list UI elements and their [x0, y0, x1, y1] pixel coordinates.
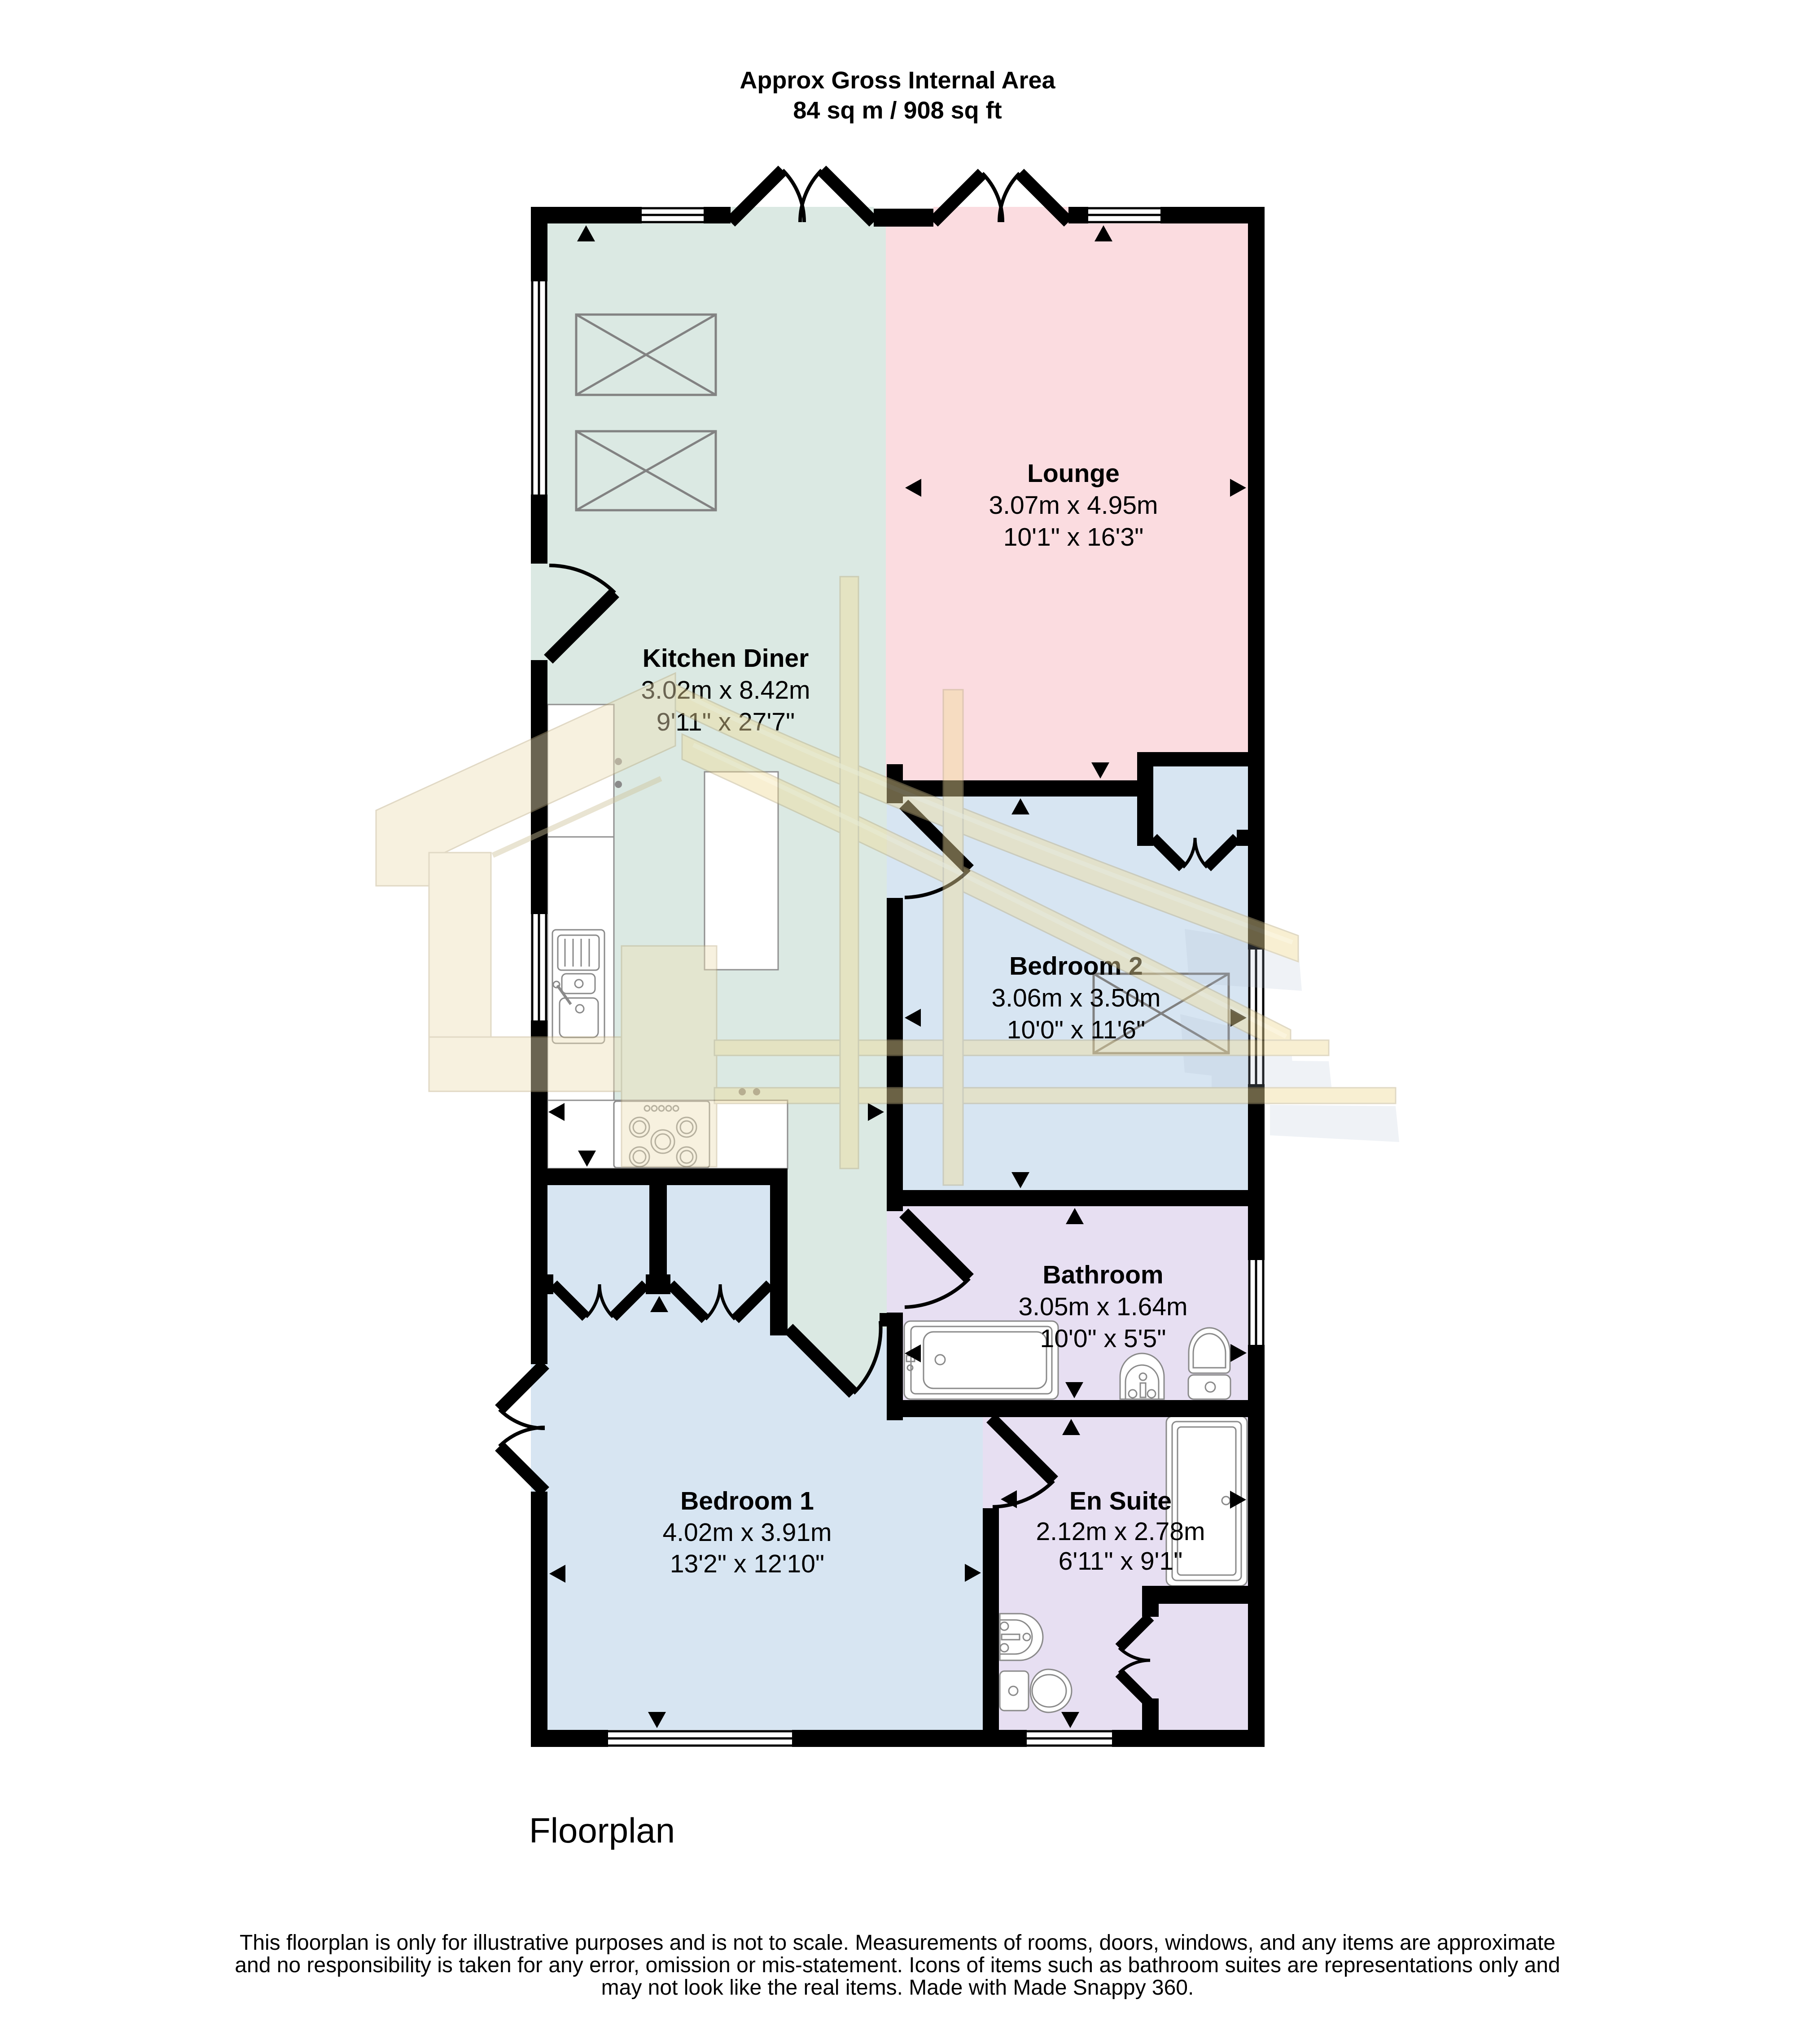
svg-text:2.12m x 2.78m: 2.12m x 2.78m [1036, 1517, 1205, 1546]
svg-text:Lounge: Lounge [1027, 459, 1120, 488]
svg-text:84 sq m / 908 sq ft: 84 sq m / 908 sq ft [793, 97, 1002, 124]
svg-text:10'1" x 16'3": 10'1" x 16'3" [1003, 523, 1144, 551]
svg-text:and no responsibility is taken: and no responsibility is taken for any e… [235, 1953, 1560, 1977]
svg-text:3.05m x 1.64m: 3.05m x 1.64m [1018, 1292, 1187, 1321]
svg-text:Floorplan: Floorplan [529, 1811, 675, 1850]
svg-text:Bedroom 1: Bedroom 1 [680, 1487, 814, 1515]
svg-text:4.02m x 3.91m: 4.02m x 3.91m [662, 1518, 832, 1547]
svg-text:3.06m x 3.50m: 3.06m x 3.50m [991, 984, 1160, 1012]
svg-text:6'11" x 9'1": 6'11" x 9'1" [1059, 1547, 1183, 1576]
svg-text:Approx Gross Internal Area: Approx Gross Internal Area [740, 67, 1055, 94]
svg-text:Bathroom: Bathroom [1042, 1261, 1163, 1289]
svg-text:This floorplan is only for ill: This floorplan is only for illustrative … [240, 1931, 1555, 1955]
svg-text:may not look like the real ite: may not look like the real items. Made w… [601, 1976, 1194, 2000]
svg-text:En Suite: En Suite [1069, 1487, 1172, 1515]
svg-text:13'2" x 12'10": 13'2" x 12'10" [670, 1549, 824, 1578]
svg-text:3.07m x 4.95m: 3.07m x 4.95m [989, 491, 1158, 520]
svg-text:Kitchen Diner: Kitchen Diner [643, 644, 809, 673]
svg-text:10'0" x 5'5": 10'0" x 5'5" [1040, 1324, 1166, 1353]
